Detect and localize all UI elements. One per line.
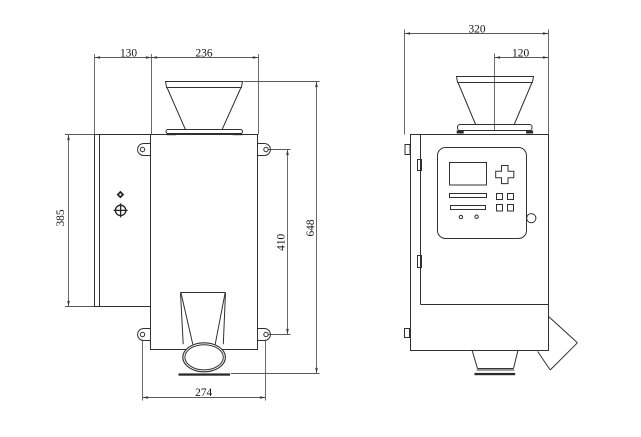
svg-text:385: 385 bbox=[55, 209, 67, 226]
svg-text:236: 236 bbox=[195, 47, 212, 59]
svg-text:130: 130 bbox=[120, 47, 137, 59]
svg-text:410: 410 bbox=[276, 233, 288, 250]
svg-text:320: 320 bbox=[468, 23, 485, 35]
svg-text:274: 274 bbox=[195, 387, 212, 399]
svg-text:648: 648 bbox=[305, 219, 317, 236]
svg-text:120: 120 bbox=[512, 47, 529, 59]
